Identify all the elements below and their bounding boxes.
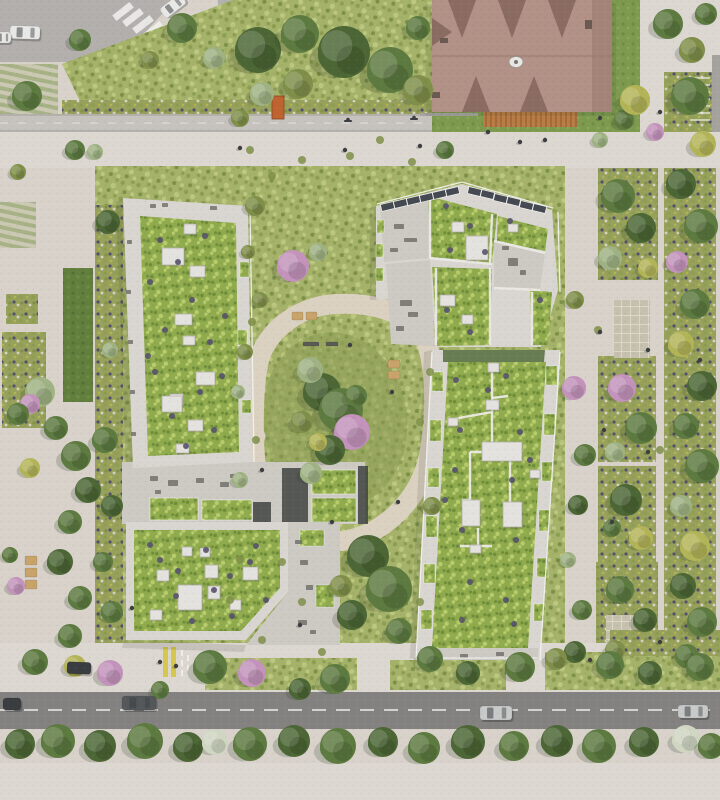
tree-shade (640, 738, 657, 755)
tree-shade (674, 259, 686, 271)
car-rear-window (502, 708, 506, 719)
roof-skylight (448, 418, 458, 426)
tree-shade (140, 737, 160, 757)
purple-shrub (453, 377, 459, 383)
olive-shrub (376, 136, 384, 144)
roof-skylight (503, 502, 522, 527)
person (518, 140, 522, 144)
tree-shade (606, 662, 621, 677)
tree-shade (463, 738, 482, 757)
orange-container (272, 96, 284, 119)
person (130, 606, 134, 610)
tree-shade (237, 116, 247, 126)
west-planter-bed (6, 294, 38, 324)
tree-shade (77, 595, 90, 608)
purple-shrub (157, 237, 163, 243)
tree-shade (429, 504, 439, 514)
tree-shade (108, 348, 117, 357)
tree-shade (698, 618, 715, 635)
balcony-planter (426, 516, 437, 537)
purple-shrub (162, 327, 168, 333)
tree-shade (31, 659, 45, 673)
tree-shade (56, 559, 70, 573)
tree-shade (27, 466, 38, 477)
roof-skylight (178, 585, 202, 610)
tree-shade (315, 440, 325, 450)
purple-shrub (197, 389, 203, 395)
roof-skylight (190, 266, 205, 277)
purple-shrub (202, 233, 208, 239)
retaining-wall (712, 55, 720, 133)
bench (388, 360, 400, 368)
tree-shade (259, 91, 272, 104)
person (486, 130, 490, 134)
roof-skylight (182, 547, 192, 556)
roof-skylight (162, 396, 182, 412)
tree-shade (682, 423, 696, 437)
person (260, 468, 264, 472)
olive-shrub (408, 158, 416, 166)
olive-shrub (252, 436, 260, 444)
olive-shrub (298, 156, 306, 164)
west-grass-paver (0, 202, 36, 248)
person (418, 144, 422, 148)
olive-shrub (246, 146, 254, 154)
tree-shade (636, 424, 654, 442)
car-rear-window (83, 664, 87, 673)
car (67, 662, 93, 677)
tree-shade (691, 542, 708, 559)
purple-shrub (169, 413, 175, 419)
glass-court (358, 466, 368, 524)
tree-shade (15, 411, 27, 423)
tree-shade (147, 58, 157, 68)
bench (25, 568, 37, 577)
person (698, 358, 702, 362)
tree-shade (248, 670, 263, 685)
purple-shrub (222, 313, 228, 319)
tree-shade (308, 470, 320, 482)
tree-shade (16, 170, 25, 179)
tree-shade (575, 503, 586, 514)
olive-shrub (258, 636, 266, 644)
tree-shade (184, 743, 201, 760)
tree-shade (347, 428, 367, 448)
tree-shade (67, 633, 80, 646)
tree-shade (696, 664, 711, 679)
purple-shrub (527, 457, 533, 463)
person (598, 116, 602, 120)
bench (326, 342, 338, 346)
white-mark (187, 655, 189, 661)
furniture (408, 312, 418, 317)
white-mark (181, 650, 183, 656)
furniture (310, 630, 316, 634)
roof-skylight (466, 236, 488, 260)
tree-shade (703, 11, 715, 23)
purple-shrub (207, 339, 213, 345)
roof-skylight (184, 224, 196, 234)
tree-shade (618, 385, 633, 400)
tree-shade (205, 663, 224, 682)
tree-shade (336, 46, 365, 75)
furniture (127, 240, 132, 244)
purple-shrub (189, 297, 195, 303)
tree-shade (679, 583, 693, 597)
tree-shade (72, 148, 83, 159)
tree-shade (23, 92, 40, 109)
balcony-planter (544, 414, 555, 435)
bench (25, 580, 37, 589)
furniture (295, 540, 302, 544)
tree-shade (16, 740, 33, 757)
car-body (122, 696, 156, 710)
car (3, 698, 23, 712)
person (298, 623, 302, 627)
car (678, 705, 710, 720)
person (598, 330, 602, 334)
roof-skylight (175, 314, 192, 325)
tree-shade (382, 583, 407, 608)
olive-shrub (416, 418, 424, 426)
tree-shade (289, 737, 307, 755)
roof-vent (440, 38, 448, 43)
balcony-planter (377, 220, 384, 233)
tree-shade (348, 611, 365, 628)
purple-shrub (511, 621, 517, 627)
purple-shrub (152, 369, 158, 375)
olive-shrub (268, 172, 276, 180)
roof-skylight (488, 363, 499, 372)
tree-shade (246, 250, 254, 258)
purple-shrub (147, 542, 153, 548)
purple-shrub (467, 579, 473, 585)
tree-shade (77, 37, 89, 49)
person (658, 640, 662, 644)
car-windshield (16, 27, 22, 37)
tree-shade (211, 55, 223, 67)
purple-shrub (503, 597, 509, 603)
tree-shade (243, 350, 252, 359)
purple-shrub (183, 443, 189, 449)
tree-shade (238, 478, 247, 487)
tree-shade (236, 390, 244, 398)
furniture (131, 432, 136, 436)
balcony-planter (242, 400, 251, 413)
south-median-green (390, 660, 506, 690)
aerial-site-plan (0, 0, 720, 800)
tree-shade (109, 609, 121, 621)
tree-shade (638, 535, 651, 548)
olive-shrub (426, 368, 434, 376)
person (158, 660, 162, 664)
car-windshield (7, 700, 11, 709)
tree-shade (245, 740, 264, 759)
purple-shrub (513, 537, 519, 543)
tree-shade (609, 526, 619, 536)
car (0, 32, 13, 45)
purple-shrub (229, 613, 235, 619)
tree-shade (258, 298, 267, 307)
purple-shrub (145, 353, 151, 359)
purple-shrub (211, 427, 217, 433)
roof-skylight (462, 500, 480, 526)
tree-shade (251, 44, 276, 69)
promenade-island (598, 356, 656, 462)
tree-shade (677, 180, 694, 197)
car-body (480, 706, 512, 720)
roof-skylight (150, 610, 162, 620)
tree-shade (612, 450, 623, 461)
purple-shrub (459, 617, 465, 623)
tree-shade (178, 24, 195, 41)
bench (303, 342, 319, 346)
roof-skylight (530, 470, 540, 478)
purple-shrub (467, 223, 473, 229)
bottom-sidewalk (0, 763, 720, 800)
roof-skylight (508, 224, 518, 232)
roof-skylight (452, 222, 464, 232)
furniture (220, 482, 229, 487)
car-rear-window (698, 707, 702, 717)
west-lawn-rectangle (63, 268, 93, 402)
tree-shade (684, 91, 705, 112)
person (348, 343, 352, 347)
tree-shade (415, 25, 428, 38)
olive-shrub (656, 446, 664, 454)
yellow-mark (163, 647, 168, 677)
car-rear-window (15, 700, 18, 709)
tree-shade (691, 300, 708, 317)
furniture (300, 560, 308, 565)
roof-hedge (443, 350, 545, 362)
tree-shade (379, 738, 396, 755)
purple-shrub (253, 543, 259, 549)
balcony-planter (240, 262, 249, 277)
car (122, 696, 158, 712)
purple-shrub (219, 373, 225, 379)
purple-shrub (147, 279, 153, 285)
tree-shade (637, 224, 654, 241)
roof-skylight (205, 565, 218, 578)
tree-shade (67, 519, 80, 532)
furniture (404, 238, 417, 242)
roof-vent (432, 92, 440, 98)
olive-shrub (346, 152, 354, 160)
tree-shade (106, 670, 120, 684)
furniture (162, 203, 168, 207)
tree-shade (516, 663, 533, 680)
cyclist (346, 118, 350, 122)
tree-shade (105, 219, 118, 232)
tree-shade (53, 425, 66, 438)
roof-skylight (470, 545, 481, 553)
tree-shade (299, 419, 311, 431)
tree-shade (572, 649, 584, 661)
tree-shade (579, 608, 590, 619)
person (658, 110, 662, 114)
purple-shrub (452, 467, 458, 473)
roof-skylight (440, 295, 455, 306)
purple-shrub (157, 557, 163, 563)
tree-shade (414, 86, 431, 103)
furniture (502, 246, 509, 250)
purple-shrub (507, 218, 513, 224)
furniture (508, 258, 518, 266)
roof-skylight (486, 400, 499, 410)
furniture (196, 478, 204, 483)
person (396, 500, 400, 504)
tree-shade (315, 250, 325, 260)
person (543, 138, 547, 142)
white-mark (181, 660, 183, 666)
green-panel (312, 498, 356, 522)
car-windshield (0, 34, 2, 42)
furniture (128, 340, 133, 344)
balcony-planter (376, 268, 383, 281)
purple-shrub (457, 427, 463, 433)
tree-shade (613, 192, 632, 211)
car-rear-window (30, 28, 35, 38)
car-windshield (129, 698, 136, 709)
purple-shrub (173, 593, 179, 599)
balcony-planter (432, 372, 443, 391)
purple-shrub (189, 618, 195, 624)
tree-shade (698, 382, 715, 399)
balcony-planter (421, 610, 432, 629)
tree-shade (621, 496, 639, 514)
tree-shade (616, 587, 631, 602)
car-body (10, 25, 40, 39)
tree-shade (677, 341, 691, 355)
furniture (394, 224, 404, 229)
purple-shrub (443, 203, 449, 209)
balcony-planter (238, 330, 247, 345)
purple-shrub (211, 587, 217, 593)
white-mark (181, 670, 183, 676)
olive-shrub (236, 556, 244, 564)
yellow-mark (171, 647, 176, 677)
furniture (400, 300, 412, 306)
olive-shrub (278, 558, 286, 566)
balcony-planter (424, 564, 435, 583)
furniture (210, 206, 217, 210)
furniture (168, 480, 178, 486)
tree-shade (333, 742, 353, 762)
furniture (155, 490, 161, 494)
purple-shrub (503, 373, 509, 379)
purple-shrub (247, 559, 253, 565)
person (588, 658, 592, 662)
balcony-planter (376, 244, 383, 257)
roof-skylight (188, 420, 203, 431)
roof-skylight (243, 567, 258, 580)
roof-skylight (157, 570, 169, 581)
tree-shade (326, 446, 343, 463)
roof-skylight (462, 315, 473, 324)
tree-shade (647, 670, 660, 683)
purple-shrub (444, 307, 450, 313)
tree-shade (109, 503, 121, 515)
tree-shade (27, 402, 38, 413)
tree-shade (642, 617, 655, 630)
purple-shrub (175, 259, 181, 265)
purple-shrub (459, 527, 465, 533)
bench (306, 312, 317, 320)
cyclist (412, 116, 416, 120)
bench (292, 312, 303, 320)
tree-shade (697, 462, 716, 481)
olive-shrub (226, 596, 234, 604)
purple-shrub (509, 477, 515, 483)
furniture (496, 652, 504, 656)
tree-shade (8, 553, 17, 562)
balcony-planter (546, 366, 557, 385)
tree-shade (157, 688, 167, 698)
furniture (150, 476, 158, 481)
tree-shade (572, 298, 582, 308)
olive-shrub (298, 598, 306, 606)
purple-shrub (175, 568, 181, 574)
tree-shade (696, 222, 715, 241)
tree-shade (631, 96, 648, 113)
tree-shade (566, 558, 575, 567)
purple-shrub (537, 297, 543, 303)
bench (388, 371, 400, 379)
tree-shade (419, 744, 437, 762)
tree-shade (607, 255, 620, 268)
furniture (396, 326, 404, 331)
tree-shade (621, 118, 632, 129)
tree-shade (594, 742, 613, 761)
tree-shade (306, 367, 320, 381)
tree-shade (552, 737, 570, 755)
tree-shade (13, 584, 23, 594)
purple-shrub (442, 497, 448, 503)
roof-vent (585, 20, 592, 29)
roof-skylight (196, 372, 215, 385)
tree-shade (72, 452, 89, 469)
tree-shade (100, 560, 111, 571)
person (602, 428, 606, 432)
glass-court (253, 502, 271, 524)
tree-shade (426, 656, 440, 670)
car-rear-window (6, 34, 8, 42)
balcony-planter (428, 468, 439, 487)
roof-skylight (183, 336, 195, 345)
site-plan-canvas (0, 0, 720, 800)
person (343, 148, 347, 152)
furniture (306, 585, 313, 590)
tree-shade (465, 670, 478, 683)
purple-shrub (485, 387, 491, 393)
person (174, 664, 178, 668)
tree-shade (353, 393, 365, 405)
person (610, 520, 614, 524)
car-windshield (487, 708, 493, 719)
balcony-planter (300, 530, 324, 546)
furniture (130, 390, 135, 394)
furniture (126, 290, 131, 294)
furniture (150, 204, 156, 208)
person (390, 390, 394, 394)
olive-shrub (416, 598, 424, 606)
chimney-cap (514, 60, 518, 64)
house-with-brown-roof (426, 0, 616, 116)
tree-shade (645, 266, 656, 277)
olive-shrub (318, 648, 326, 656)
car (480, 706, 514, 722)
